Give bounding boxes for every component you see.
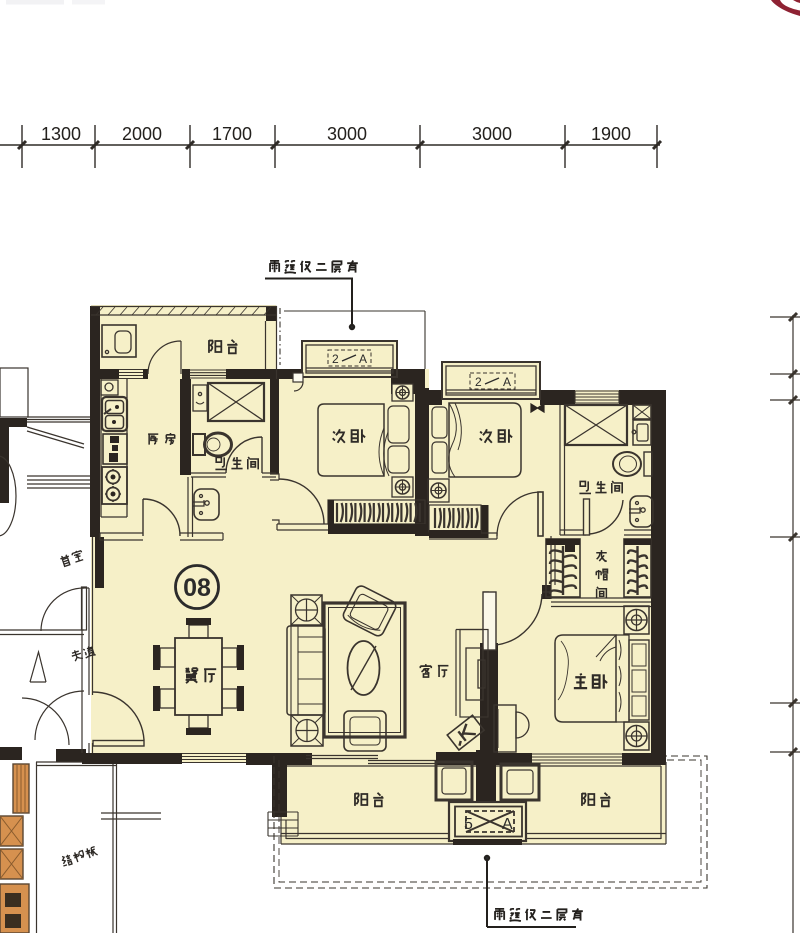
- svg-text:1900: 1900: [591, 124, 631, 144]
- svg-text:1700: 1700: [212, 124, 252, 144]
- svg-text:1300: 1300: [41, 124, 81, 144]
- svg-text:2: 2: [332, 352, 339, 366]
- svg-text:08: 08: [183, 574, 211, 602]
- svg-text:2: 2: [475, 375, 482, 389]
- svg-text:A: A: [503, 375, 511, 389]
- svg-text:2000: 2000: [122, 124, 162, 144]
- svg-text:3000: 3000: [472, 124, 512, 144]
- svg-text:A: A: [359, 352, 367, 366]
- svg-text:A: A: [502, 816, 513, 833]
- svg-text:3000: 3000: [327, 124, 367, 144]
- svg-text:5: 5: [464, 816, 473, 833]
